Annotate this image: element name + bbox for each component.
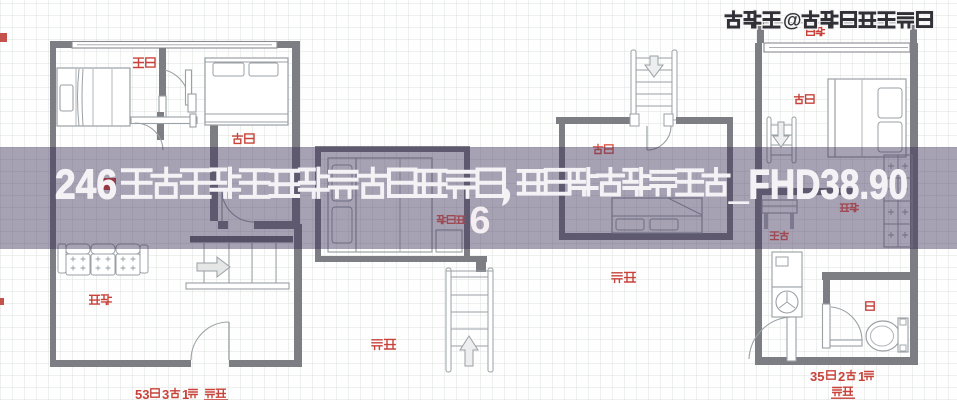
svg-text:35: 35 <box>810 369 824 384</box>
svg-text:2: 2 <box>838 369 845 384</box>
svg-text:_FHD38.90: _FHD38.90 <box>728 161 908 208</box>
svg-text:53: 53 <box>135 387 149 400</box>
svg-text:246: 246 <box>55 161 117 208</box>
svg-text:3: 3 <box>162 387 169 400</box>
svg-text:6: 6 <box>469 200 490 242</box>
svg-text:@: @ <box>783 11 802 32</box>
